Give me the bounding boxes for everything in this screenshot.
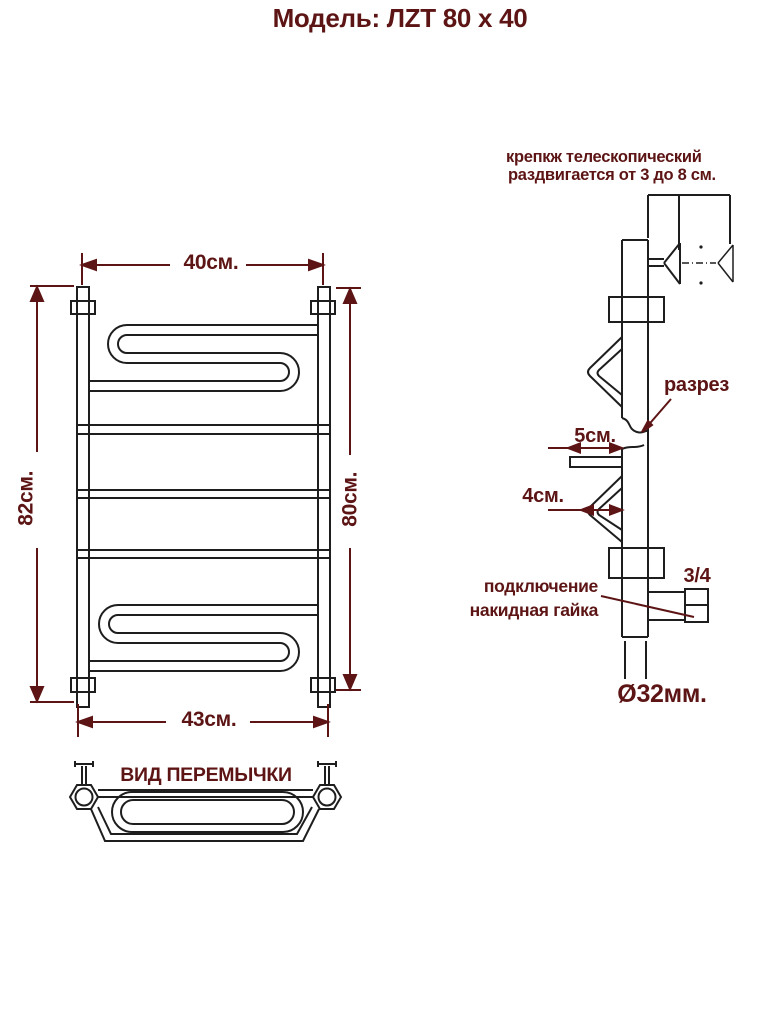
top-serpentine-tube <box>89 325 318 391</box>
valve-stem-left <box>75 761 93 784</box>
bracket-bottom-left <box>71 678 95 692</box>
dim-height-right: 80см. <box>340 451 363 547</box>
dim-width-bottom: 43см. <box>164 709 254 732</box>
bend-upper-outer <box>588 337 622 407</box>
crossbar-loop-inner <box>121 800 294 824</box>
collar-lower <box>609 548 664 578</box>
connection-stub <box>648 592 685 620</box>
connection-label-line1: подключение <box>438 575 598 597</box>
screw-head-phantom <box>718 245 733 282</box>
rung-side-profile <box>570 457 622 467</box>
phantom-dot-top <box>699 245 702 248</box>
screw-shaft <box>648 259 664 266</box>
telescopic-bracket <box>648 195 730 250</box>
straight-rungs <box>77 425 330 558</box>
mount-note-line1: крепкж телескопический <box>506 149 702 167</box>
collar-upper <box>609 297 664 322</box>
dim-height-left: 82см. <box>16 450 39 546</box>
pipe-end-right <box>319 789 336 806</box>
pipe-end-left <box>76 789 93 806</box>
front-view-drawing <box>71 287 335 707</box>
mount-note-line2: раздвигается от 3 до 8 см. <box>508 167 716 185</box>
bracket-top-right <box>311 301 335 314</box>
dim-width-top: 40см. <box>168 252 254 275</box>
connection-label-line2: накидная гайка <box>438 599 598 621</box>
phantom-dot-bottom <box>699 281 702 284</box>
bracket-bottom-right <box>311 678 335 692</box>
dim-shelf-label: 5см. <box>568 426 622 448</box>
cutaway-squiggle-bottom <box>622 445 644 449</box>
pipe-tail-lines <box>625 641 646 679</box>
section-label: разрез <box>664 375 729 397</box>
pipe-diameter-label: Ø32мм. <box>602 681 722 708</box>
crossbar-view-title: ВИД ПЕРЕМЫЧКИ <box>118 765 294 786</box>
model-title: Модель: ЛZТ 80 х 40 <box>40 4 760 32</box>
screw-head <box>664 243 680 284</box>
thread-size-label: 3/4 <box>679 566 715 588</box>
drawing-page: Модель: ЛZТ 80 х 40 крепкж телескопическ… <box>0 0 768 1024</box>
valve-stem-right <box>318 761 336 784</box>
dim-bend-label: 4см. <box>518 486 568 508</box>
bottom-serpentine-tube <box>89 605 318 671</box>
bracket-top-left <box>71 301 95 314</box>
crossbar-outline-inner <box>98 807 312 834</box>
